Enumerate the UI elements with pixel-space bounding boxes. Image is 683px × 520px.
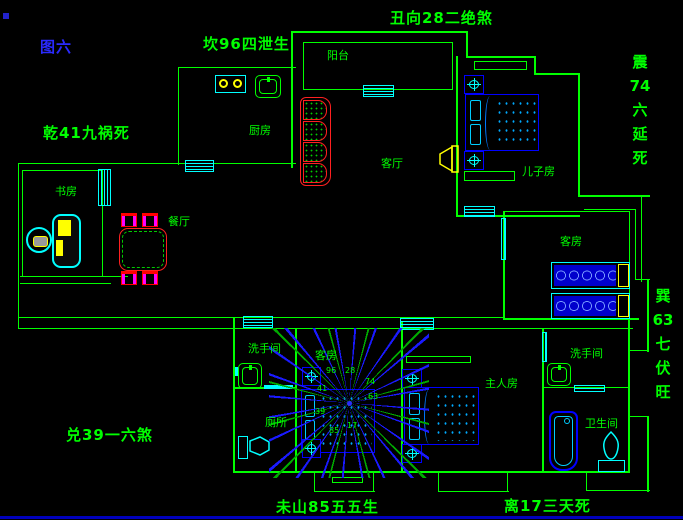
twin-bed: [551, 293, 630, 319]
balcony-walls: [303, 42, 453, 90]
sofa-cushion: [303, 163, 327, 183]
wall: [629, 350, 649, 351]
wall: [578, 195, 650, 197]
wall: [647, 416, 649, 492]
room-label-kitchen: 厨房: [249, 125, 271, 137]
annotation-zhen-char: 震: [627, 50, 653, 74]
wall: [584, 209, 636, 210]
dining-table: [119, 228, 167, 271]
wall: [466, 31, 468, 58]
room-label-washroom-right: 洗手间: [570, 348, 603, 360]
annotation-xun-char: 七: [650, 332, 676, 356]
compass-number: 17: [347, 422, 357, 430]
compass-number: 85: [329, 427, 339, 435]
annotation-zhen: 震 74 六 延 死: [627, 50, 653, 170]
washroom-left-sink: [238, 363, 262, 389]
toilet-cistern: [238, 436, 248, 459]
toilet-bowl-icon: [600, 431, 622, 462]
wall: [456, 56, 458, 217]
twin-bed: [551, 262, 630, 289]
master-bedroom-door: [542, 332, 547, 362]
wall: [628, 416, 649, 417]
pillow: [470, 124, 481, 145]
annotation-zhen-char: 74: [627, 74, 653, 98]
room-label-master-bedroom: 主人房: [485, 378, 518, 390]
wall: [507, 471, 508, 492]
annotation-chou: 丑向28二绝煞: [390, 7, 493, 28]
bathtub: [549, 411, 578, 471]
study-door: [98, 169, 111, 206]
room-label-dining: 餐厅: [168, 216, 190, 228]
mattress-pattern: [554, 296, 616, 316]
burner-icon: [219, 79, 228, 88]
washroom-left-window: [243, 316, 273, 328]
dining-chair: [142, 213, 158, 227]
screen-artifact-square: [3, 13, 9, 19]
dining-chair: [121, 213, 137, 227]
pillow: [470, 100, 481, 121]
room-label-balcony: 阳台: [327, 50, 349, 62]
burner-icon: [233, 79, 242, 88]
room-label-son-bedroom: 儿子房: [522, 166, 555, 178]
computer-icon: [58, 220, 71, 236]
annotation-xun-char: 伏: [650, 356, 676, 380]
kitchen-sink: [255, 75, 281, 98]
toilet-base: [598, 460, 625, 472]
room-label-study: 书房: [55, 186, 77, 198]
chair-seat: [33, 236, 48, 247]
annotation-dui: 兑39一六煞: [66, 424, 153, 445]
guest-bedroom-door: [501, 218, 506, 260]
compass-center-icon: [347, 401, 352, 406]
room-label-guest-bedroom: 客房: [560, 236, 582, 248]
wardrobe: [474, 61, 527, 70]
study-desk: [52, 214, 81, 268]
annotation-li: 离17三天死: [504, 495, 591, 516]
mattress-pattern: [496, 99, 536, 147]
annotation-xun-char: 巽: [650, 284, 676, 308]
wall: [641, 197, 642, 282]
stove: [215, 75, 246, 93]
mattress-pattern: [435, 392, 476, 441]
quilt-fold: [485, 96, 495, 150]
pillow: [618, 295, 629, 317]
compass-number: 63: [368, 393, 378, 401]
washroom-right-sink: [547, 363, 571, 386]
wall: [20, 276, 128, 277]
floor-plan-canvas[interactable]: 96 28 74 63 17 85 39 41 厨房 阳台 客厅 书房 餐厅 儿…: [0, 0, 683, 520]
wall: [635, 210, 636, 280]
son-bedroom-window: [464, 206, 495, 217]
wall: [534, 73, 580, 75]
son-bed: [465, 94, 539, 151]
wall: [586, 490, 650, 491]
nightstand: [464, 75, 484, 94]
annotation-xun: 巽 63 七 伏 旺: [650, 284, 676, 404]
study-chair: [26, 227, 52, 253]
dresser: [464, 171, 515, 181]
wall: [18, 163, 19, 329]
annotation-qian: 乾41九祸死: [43, 122, 130, 143]
annotation-zhen-char: 死: [627, 146, 653, 170]
annotation-xun-char: 63: [650, 308, 676, 332]
sink-handle: [235, 367, 238, 376]
annotation-zhen-char: 六: [627, 98, 653, 122]
sofa: [300, 97, 331, 186]
wall: [178, 67, 296, 68]
toilet-bowl-icon: [248, 436, 271, 456]
wall: [578, 73, 580, 197]
sofa-cushion: [303, 100, 327, 120]
room-label-living: 客厅: [381, 158, 403, 170]
compass-number: 74: [365, 378, 375, 386]
wall: [20, 283, 111, 284]
wall: [291, 31, 468, 33]
wall: [291, 31, 293, 168]
compass-number: 39: [315, 408, 325, 416]
wall: [628, 318, 630, 473]
annotation-kan: 坎96四泄生: [203, 33, 290, 54]
room-label-toilet: 厕所: [265, 417, 287, 429]
sofa-cushion: [303, 121, 327, 141]
wall: [586, 473, 587, 491]
wall: [438, 491, 509, 492]
dining-chair: [142, 271, 158, 285]
wall: [18, 163, 296, 164]
mattress-pattern: [554, 265, 616, 286]
wall: [647, 280, 649, 352]
annotation-wei: 未山85五五生: [276, 496, 379, 517]
wall: [504, 211, 630, 212]
kitchen-window: [185, 160, 214, 172]
annotation-xun-char: 旺: [650, 380, 676, 404]
balcony-window: [363, 85, 394, 97]
compass-number: 28: [345, 367, 355, 375]
sofa-cushion: [303, 142, 327, 162]
pillow: [618, 264, 629, 287]
compass-number: 96: [326, 367, 336, 375]
wall: [178, 67, 179, 165]
wall: [466, 56, 536, 58]
wall: [314, 491, 375, 492]
dining-chair: [121, 271, 137, 285]
desk-item-icon: [56, 240, 63, 256]
figure-label: 图六: [40, 36, 72, 57]
compass-number: 41: [317, 385, 327, 393]
washroom-right-window: [574, 385, 605, 392]
room-label-washroom-left: 洗手间: [248, 343, 281, 355]
nightstand: [464, 151, 484, 170]
annotation-zhen-char: 延: [627, 122, 653, 146]
wall: [438, 471, 439, 492]
tv-icon: [438, 144, 460, 174]
room-label-bathroom: 卫生间: [585, 418, 618, 430]
wall: [233, 317, 235, 473]
room-label-center-bedroom: 客房: [315, 350, 337, 362]
